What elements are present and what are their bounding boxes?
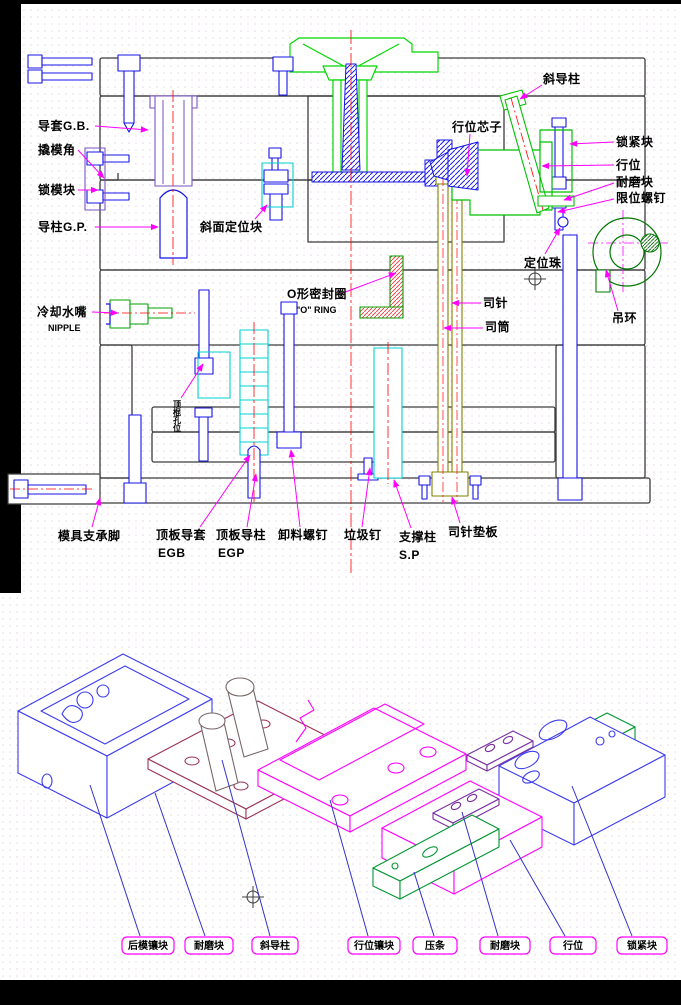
label-box-rear-insert: 后模镶块 — [122, 937, 174, 954]
top-black-bar — [0, 0, 681, 4]
label-slide: 行位 — [615, 157, 641, 172]
label-cooling-nipple: 冷却水嘴 — [37, 304, 87, 319]
support-pillar — [374, 342, 402, 484]
sleeve-retainer — [432, 472, 468, 496]
label-mold-lock-block: 锁模块 — [38, 182, 76, 197]
cad-drawing-page: 导套G.B. 撬模角 锁模块 导柱G.P. 斜面定位块 冷却水嘴 NIPPLE … — [0, 0, 681, 1005]
label-limit-screw: 限位螺钉 — [616, 190, 666, 205]
label-box-wear-block-left: 耐磨块 — [185, 937, 233, 954]
label-box-slide: 行位 — [550, 937, 596, 954]
locating-ball — [558, 217, 568, 227]
label-box-wear-block-right: 耐磨块 — [480, 937, 530, 954]
svg-text:耐磨块: 耐磨块 — [490, 939, 521, 952]
svg-text:斜导柱: 斜导柱 — [259, 939, 290, 952]
label-o-ring-en: "O" RING — [296, 305, 337, 315]
label-box-angle-pin: 斜导柱 — [252, 937, 298, 954]
label-guide-pillar: 导柱G.P. — [38, 219, 87, 234]
label-eyebolt: 吊环 — [612, 311, 637, 325]
label-taper-locating-block: 斜面定位块 — [199, 219, 263, 234]
label-stripper-bolt: 卸料螺钉 — [278, 527, 328, 542]
label-stop-pin: 垃圾钉 — [344, 527, 382, 542]
label-pry-angle: 撬模角 — [38, 142, 76, 157]
label-locating-ball: 定位珠 — [524, 255, 562, 270]
label-lock-block: 锁紧块 — [616, 134, 654, 149]
svg-text:耐磨块: 耐磨块 — [194, 939, 225, 952]
label-box-lock-block: 锁紧块 — [617, 937, 667, 954]
label-support-pillar: 支撑柱 — [398, 529, 437, 544]
label-sleeve-retainer: 司针垫板 — [448, 524, 499, 539]
label-box-slide-insert: 行位镶块 — [348, 937, 400, 954]
label-sleeve: 司筒 — [485, 319, 510, 334]
label-o-ring: O形密封圈 — [287, 286, 347, 301]
svg-text:压条: 压条 — [425, 939, 446, 952]
stop-pin — [364, 458, 372, 474]
svg-text:锁紧块: 锁紧块 — [627, 939, 658, 952]
label-box-gib: 压条 — [413, 937, 457, 954]
label-nipple-en: NIPPLE — [48, 323, 81, 333]
slide-core-insert — [448, 142, 478, 190]
svg-text:后模镶块: 后模镶块 — [128, 939, 169, 952]
bottom-black-bar — [0, 980, 681, 1005]
label-guide-bushing: 导套G.B. — [38, 118, 90, 133]
mold-drawing-canvas: 导套G.B. 撬模角 锁模块 导柱G.P. 斜面定位块 冷却水嘴 NIPPLE … — [0, 0, 681, 1005]
svg-text:行位: 行位 — [562, 939, 583, 952]
label-angle-pin: 斜导柱 — [542, 71, 581, 86]
exploded-label-boxes: 后模镶块 耐磨块 斜导柱 行位镶块 压条 耐磨块 — [122, 937, 667, 954]
label-slide-core: 行位芯子 — [451, 119, 502, 134]
label-ko-hole: 顶棍孔位 — [173, 400, 182, 433]
label-egp: 顶板导柱 — [216, 527, 266, 542]
label-support-foot: 模具支承脚 — [58, 528, 121, 543]
guide-pillar — [160, 190, 187, 258]
svg-text:行位镶块: 行位镶块 — [353, 939, 395, 952]
mold-support-foot — [8, 474, 100, 504]
label-egb: 顶板导套 — [156, 527, 207, 542]
eyebolt-shank — [596, 270, 610, 292]
label-egp-en: EGP — [218, 546, 245, 560]
wear-plate — [538, 196, 574, 206]
label-sp-en: S.P — [399, 548, 420, 562]
guide-bushing — [155, 96, 192, 186]
label-sleeve-pin: 司针 — [483, 295, 508, 310]
label-wear-block: 耐磨块 — [616, 174, 654, 189]
label-egb-en: EGB — [158, 546, 186, 560]
eyebolt-ball — [641, 234, 659, 252]
